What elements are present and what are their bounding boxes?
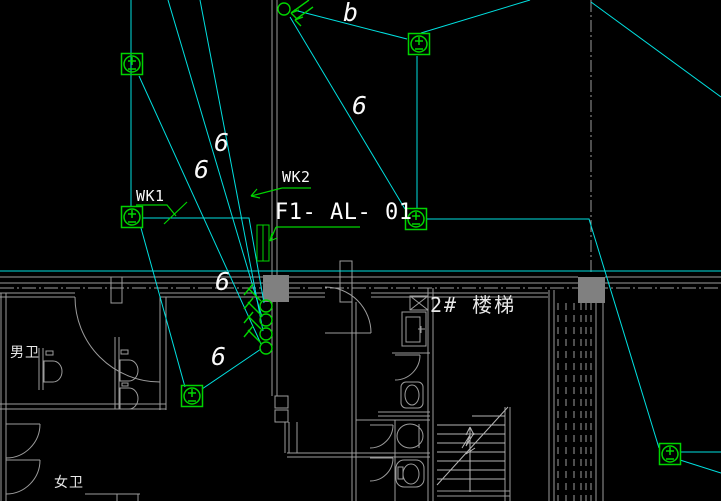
- wire-count-label[interactable]: 6: [211, 344, 226, 369]
- ceiling-lamp-icon[interactable]: [660, 444, 681, 465]
- door-arcs: [6, 287, 420, 494]
- male-wc-label[interactable]: 男卫: [10, 346, 40, 360]
- stair-up-arrow: [466, 427, 475, 492]
- panel-leader: [270, 227, 360, 241]
- ceiling-lamp-icon[interactable]: [182, 386, 203, 407]
- cad-drawing: [0, 0, 721, 501]
- wk1-leader: [136, 202, 187, 224]
- panel-label[interactable]: F1- AL- 01: [275, 202, 412, 224]
- ceiling-lamp-icon[interactable]: [409, 34, 430, 55]
- stair-room-label[interactable]: 2# 楼梯: [430, 295, 516, 315]
- wk2-leader: [251, 188, 311, 198]
- circuit-label-wk1[interactable]: WK1: [136, 189, 165, 204]
- wire-count-label[interactable]: 6: [194, 157, 209, 182]
- distribution-panel-icon[interactable]: [257, 225, 269, 261]
- ceiling-lamp-icon[interactable]: [122, 54, 143, 75]
- walls: [0, 0, 721, 501]
- wiring-circuits[interactable]: [0, 0, 721, 473]
- female-wc-label[interactable]: 女卫: [54, 476, 84, 490]
- ceiling-lamp-icon[interactable]: [122, 207, 143, 228]
- wires-up-arrow-icon[interactable]: [278, 0, 313, 26]
- wire-count-label[interactable]: 6: [214, 130, 229, 155]
- phase-label[interactable]: b: [343, 0, 358, 25]
- wire-count-label[interactable]: 6: [352, 93, 367, 118]
- cad-viewport: WK1 WK2 F1- AL- 01 b 6 6 6 6 6 2# 楼梯 男卫 …: [0, 0, 721, 501]
- staircase: [437, 407, 508, 492]
- wire-count-label[interactable]: 6: [215, 269, 230, 294]
- circuit-label-wk2[interactable]: WK2: [282, 170, 311, 185]
